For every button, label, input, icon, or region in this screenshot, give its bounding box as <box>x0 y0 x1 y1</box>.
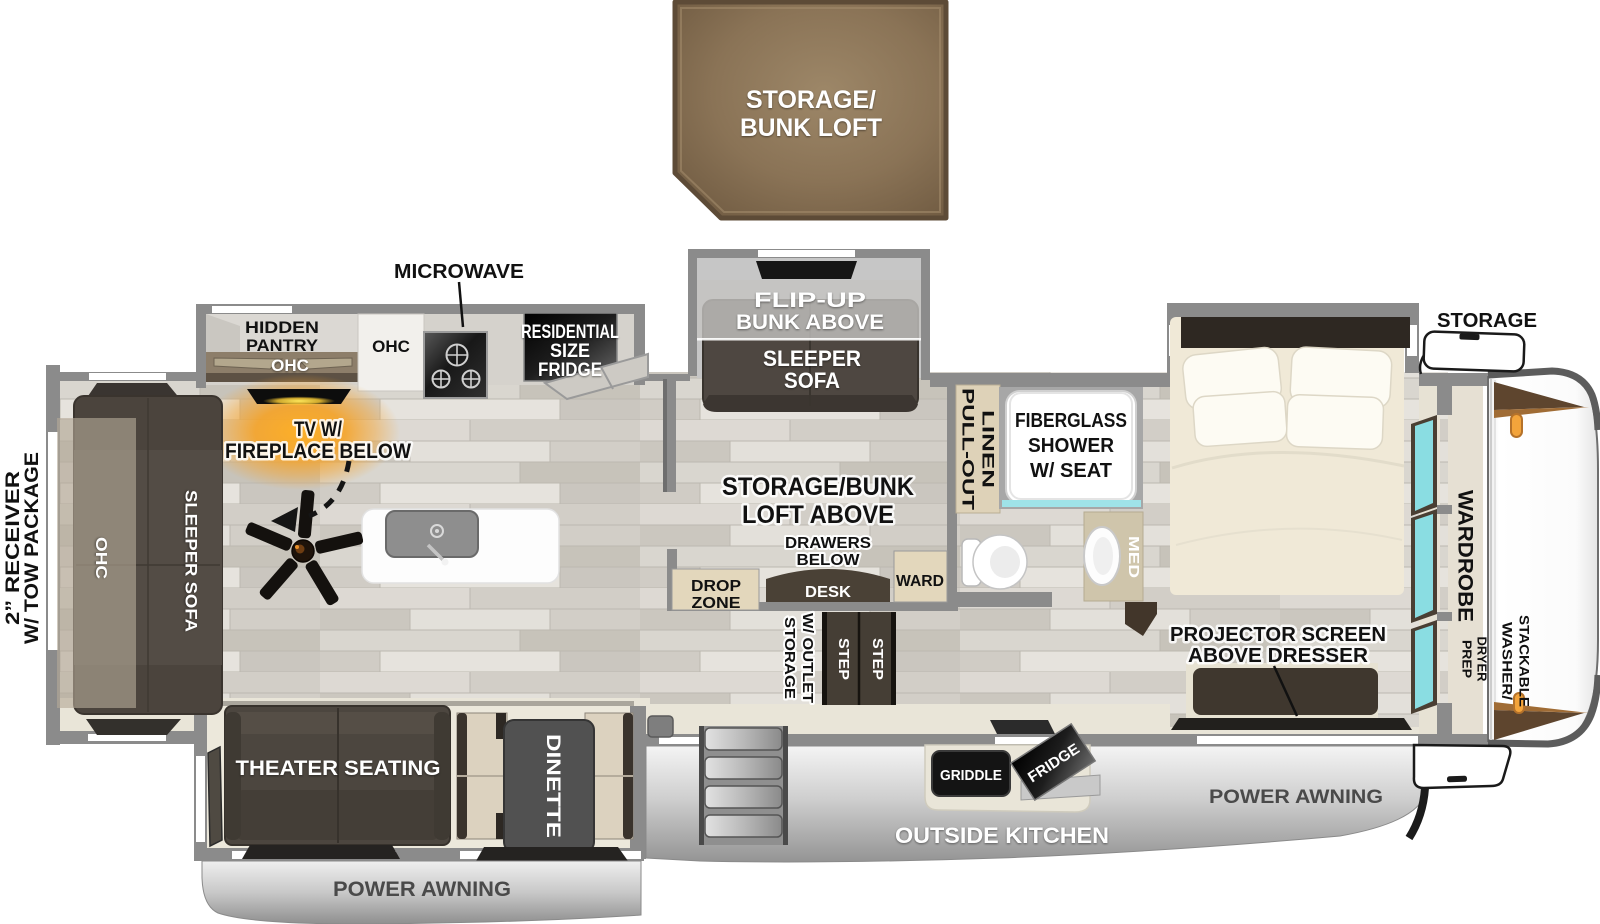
svg-text:MED: MED <box>1125 536 1142 578</box>
svg-text:OHC: OHC <box>372 337 410 356</box>
svg-text:WARDROBE: WARDROBE <box>1453 490 1476 622</box>
svg-text:FIBERGLASS: FIBERGLASS <box>1015 410 1127 432</box>
svg-text:HIDDEN: HIDDEN <box>245 318 319 337</box>
svg-text:STACKABLE: STACKABLE <box>1516 615 1532 707</box>
svg-text:POWER AWNING: POWER AWNING <box>333 878 511 901</box>
svg-text:STORAGE: STORAGE <box>1437 310 1537 332</box>
svg-text:FLIP-UP: FLIP-UP <box>754 289 866 312</box>
svg-text:RESIDENTIAL: RESIDENTIAL <box>521 322 619 343</box>
svg-text:GRIDDLE: GRIDDLE <box>940 767 1002 784</box>
svg-text:STORAGE/: STORAGE/ <box>746 86 876 114</box>
svg-text:BELOW: BELOW <box>797 552 861 569</box>
svg-text:MICROWAVE: MICROWAVE <box>394 261 524 283</box>
svg-text:SIZE: SIZE <box>550 341 590 362</box>
svg-text:2” RECEIVER: 2” RECEIVER <box>3 471 24 625</box>
svg-text:OHC: OHC <box>92 537 109 580</box>
svg-text:THEATER SEATING: THEATER SEATING <box>236 757 441 780</box>
svg-text:PANTRY: PANTRY <box>246 336 319 355</box>
svg-text:WARD: WARD <box>896 573 944 590</box>
svg-text:LOFT ABOVE: LOFT ABOVE <box>742 501 894 529</box>
svg-text:PULL-OUT: PULL-OUT <box>959 388 978 511</box>
svg-text:STEP: STEP <box>835 638 852 680</box>
svg-text:DROP: DROP <box>691 578 741 595</box>
svg-text:W/ TOW PACKAGE: W/ TOW PACKAGE <box>22 452 43 644</box>
svg-text:DESK: DESK <box>805 584 851 601</box>
svg-text:SOFA: SOFA <box>784 368 840 393</box>
svg-text:BUNK ABOVE: BUNK ABOVE <box>736 311 884 334</box>
svg-text:SHOWER: SHOWER <box>1028 435 1115 457</box>
svg-text:ABOVE DRESSER: ABOVE DRESSER <box>1188 645 1369 667</box>
svg-text:OHC: OHC <box>271 356 309 375</box>
svg-text:OUTSIDE KITCHEN: OUTSIDE KITCHEN <box>895 823 1109 848</box>
svg-text:FRIDGE: FRIDGE <box>538 360 602 381</box>
svg-text:POWER AWNING: POWER AWNING <box>1209 787 1383 808</box>
svg-text:STORAGE/BUNK: STORAGE/BUNK <box>722 473 914 501</box>
svg-text:STEP: STEP <box>869 638 886 680</box>
svg-text:WASHER/: WASHER/ <box>1499 622 1515 700</box>
svg-text:FIREPLACE BELOW: FIREPLACE BELOW <box>225 440 411 463</box>
svg-text:SLEEPER SOFA: SLEEPER SOFA <box>182 490 201 632</box>
svg-text:W/ SEAT: W/ SEAT <box>1030 460 1112 482</box>
svg-text:LINEN: LINEN <box>979 410 998 488</box>
svg-text:W/ OUTLET: W/ OUTLET <box>799 613 816 703</box>
svg-text:BUNK LOFT: BUNK LOFT <box>740 114 882 142</box>
svg-text:PREP: PREP <box>1460 640 1475 678</box>
svg-text:ZONE: ZONE <box>692 595 741 612</box>
svg-text:TV W/: TV W/ <box>294 418 342 441</box>
svg-text:DINETTE: DINETTE <box>542 734 563 838</box>
svg-text:STORAGE: STORAGE <box>781 617 798 699</box>
svg-text:PROJECTOR SCREEN: PROJECTOR SCREEN <box>1170 624 1386 646</box>
svg-text:DRAWERS: DRAWERS <box>785 535 871 552</box>
